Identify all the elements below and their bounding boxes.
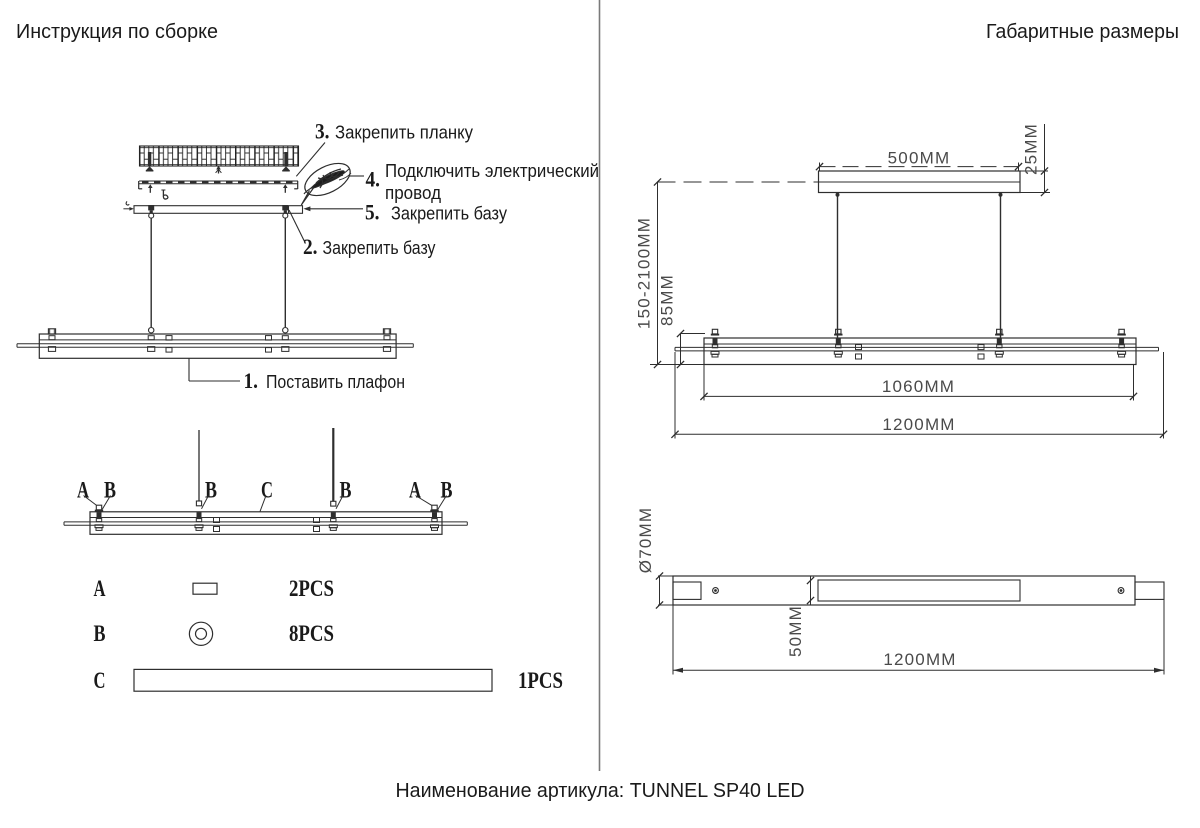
svg-text:1200MM: 1200MM — [882, 415, 955, 434]
svg-text:B: B — [104, 478, 116, 503]
svg-text:C: C — [261, 478, 273, 503]
svg-text:1.: 1. — [244, 368, 259, 393]
svg-text:150-2100MM: 150-2100MM — [635, 217, 654, 329]
svg-text:B: B — [441, 478, 453, 503]
svg-text:Закрепить планку: Закрепить планку — [335, 122, 474, 143]
svg-text:провод: провод — [385, 182, 441, 203]
svg-text:1PCS: 1PCS — [518, 668, 563, 693]
svg-text:A: A — [409, 478, 421, 503]
svg-text:Закрепить базу: Закрепить базу — [323, 237, 437, 258]
svg-text:Ø70MM: Ø70MM — [636, 507, 655, 573]
svg-text:2.: 2. — [303, 234, 318, 259]
svg-text:4.: 4. — [366, 167, 381, 192]
svg-text:C: C — [94, 668, 106, 693]
svg-text:5.: 5. — [365, 200, 380, 225]
svg-text:Поставить плафон: Поставить плафон — [266, 371, 405, 392]
svg-text:Габаритные размеры: Габаритные размеры — [986, 21, 1179, 43]
svg-text:25MM: 25MM — [1022, 123, 1041, 175]
svg-text:2PCS: 2PCS — [289, 576, 334, 601]
svg-text:50MM: 50MM — [786, 605, 805, 657]
svg-text:A: A — [94, 576, 106, 601]
svg-text:500MM: 500MM — [888, 149, 951, 168]
svg-text:8PCS: 8PCS — [289, 621, 334, 646]
svg-text:B: B — [94, 621, 106, 646]
svg-text:Закрепить базу: Закрепить базу — [391, 203, 508, 224]
svg-text:Наименование артикула: TUNNEL: Наименование артикула: TUNNEL SP40 LED — [396, 780, 805, 802]
svg-text:3.: 3. — [315, 119, 330, 144]
svg-text:1060MM: 1060MM — [882, 377, 955, 396]
svg-text:Инструкция по сборке: Инструкция по сборке — [16, 21, 218, 43]
svg-text:85MM: 85MM — [658, 274, 677, 326]
svg-text:1200MM: 1200MM — [883, 650, 956, 669]
svg-text:Подключить электрический: Подключить электрический — [385, 160, 599, 181]
